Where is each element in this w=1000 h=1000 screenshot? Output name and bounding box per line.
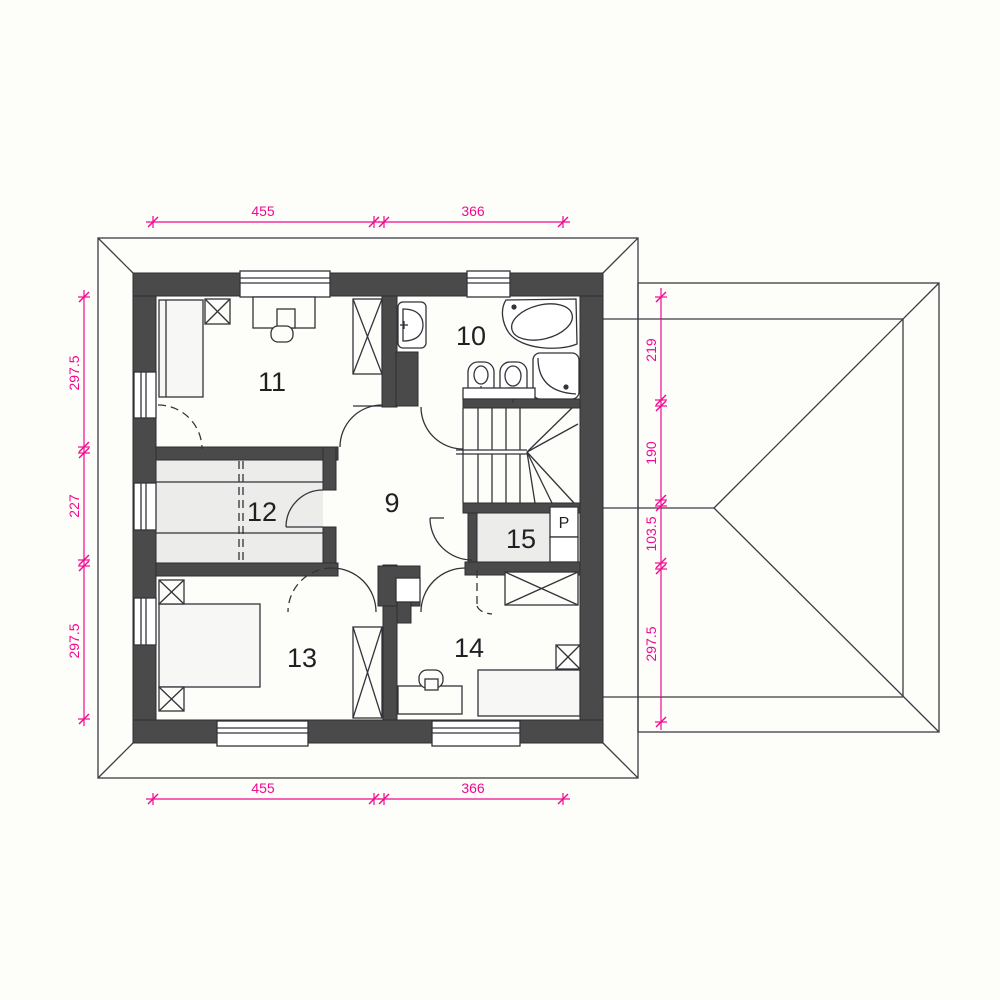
window-left-2 <box>134 483 156 530</box>
washbasin <box>398 302 426 348</box>
door-laundry <box>430 518 472 560</box>
room-label-hall: 9 <box>384 488 399 518</box>
bed-room13 <box>159 604 260 687</box>
wall-room11-room12 <box>156 447 338 460</box>
bed-room11 <box>159 300 203 397</box>
wall-top <box>133 273 603 296</box>
dim-left-297-5-a: 297.5 <box>66 355 82 390</box>
wall-room11-bathroom <box>382 296 397 407</box>
bathroom-counter <box>463 388 535 399</box>
wall-bottom <box>133 720 603 743</box>
dim-right-190: 190 <box>643 441 659 465</box>
dim-right-219: 219 <box>643 338 659 362</box>
room-label-laundry-p: P <box>559 515 570 532</box>
window-bottom-1 <box>217 721 308 746</box>
desk-room11 <box>253 297 315 342</box>
door-room14 <box>421 568 465 612</box>
room-label-laundry15: 15 <box>506 524 536 554</box>
window-left-1 <box>134 372 156 418</box>
bed-room14 <box>478 670 580 716</box>
door-bathroom <box>421 407 463 449</box>
room-label-bathroom: 10 <box>456 321 486 351</box>
wall-room12-room13 <box>156 563 338 576</box>
wall-right <box>580 296 603 720</box>
wardrobe-room14 <box>505 572 578 605</box>
dim-bottom-455: 455 <box>251 780 275 796</box>
bathtub <box>502 298 577 348</box>
wardrobe-room13 <box>353 627 382 718</box>
laundry-cabinet <box>550 537 578 562</box>
nightstand-room13-bottom <box>159 687 184 711</box>
nightstand-room13-top <box>159 580 184 604</box>
duct-hall-shaft <box>396 578 420 602</box>
room-label-wardrobe12: 12 <box>247 497 277 527</box>
wall-bathroom-stairs <box>463 399 580 408</box>
room-label-bedroom14: 14 <box>454 633 484 663</box>
wall-laundry-left <box>468 513 477 562</box>
room-label-bedroom13: 13 <box>287 643 317 673</box>
nightstand-room14 <box>556 645 580 669</box>
window-left-3 <box>134 598 156 645</box>
dimension-bottom: 455 366 <box>146 780 570 805</box>
dimension-top: 455 366 <box>146 203 570 228</box>
floor-plan-drawing: 455 366 455 366 297.5 227 297.5 <box>0 0 1000 1000</box>
dimension-right: 219 190 103.5 297.5 <box>643 288 667 730</box>
floor-plan-page: 455 366 455 366 297.5 227 297.5 <box>0 0 1000 1000</box>
dim-right-103-5: 103.5 <box>643 516 659 551</box>
desk-room14 <box>398 670 462 714</box>
duct-bathroom <box>396 352 418 406</box>
door-swing-dashed-room11 <box>158 405 202 449</box>
door-room13 <box>332 568 376 612</box>
wall-room12-hall-upper <box>323 447 336 490</box>
dim-left-297-5-b: 297.5 <box>66 623 82 658</box>
dimension-left: 297.5 227 297.5 <box>66 290 90 726</box>
shower <box>533 353 579 399</box>
stairs <box>456 408 578 503</box>
dim-top-455: 455 <box>251 203 275 219</box>
room-label-bedroom11: 11 <box>258 367 286 397</box>
wardrobe-room11 <box>353 299 382 374</box>
nightstand-room11 <box>205 299 230 324</box>
window-top-2 <box>467 271 510 297</box>
dim-right-297-5: 297.5 <box>643 626 659 661</box>
bathroom-fixtures <box>398 298 579 403</box>
window-top-1 <box>240 271 330 297</box>
duct-hall-stub <box>397 602 411 623</box>
window-bottom-2 <box>432 721 520 746</box>
dim-top-366: 366 <box>461 203 485 219</box>
dim-bottom-366: 366 <box>461 780 485 796</box>
dim-left-227: 227 <box>66 494 82 518</box>
door-room11 <box>340 405 382 447</box>
